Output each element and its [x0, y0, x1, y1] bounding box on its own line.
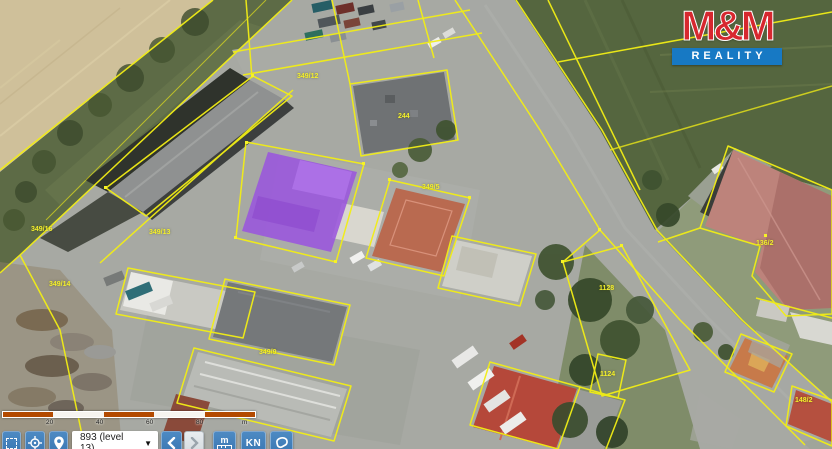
- history-back-button[interactable]: [161, 431, 182, 449]
- parcel-label: 1124: [600, 371, 615, 378]
- dashed-square-icon: [6, 438, 17, 449]
- zoom-level-value: 893 (level 13): [80, 432, 140, 449]
- ruler-icon: [217, 445, 232, 449]
- history-forward-button[interactable]: [184, 431, 204, 449]
- measure-label: m: [220, 436, 228, 444]
- caret-down-icon: ▼: [144, 439, 152, 448]
- cadastre-button[interactable]: KN: [241, 431, 266, 449]
- chevron-left-icon: [167, 437, 176, 449]
- parcel-label: 349/13: [149, 229, 170, 236]
- parcel-label: 148/2: [795, 397, 813, 404]
- map-pin-icon: [53, 436, 65, 449]
- parcel-label: 244: [398, 113, 410, 120]
- lasso-icon: [274, 436, 289, 449]
- crosshair-icon: [28, 436, 42, 449]
- parcel-label: 349/12: [297, 73, 318, 80]
- parcel-label: 136/2: [756, 240, 774, 247]
- scale-bar-track: [2, 411, 256, 418]
- map-toolbar: 893 (level 13) ▼ m KN: [2, 431, 293, 449]
- zoom-level-select[interactable]: 893 (level 13) ▼: [72, 431, 158, 449]
- parcel-label: 1128: [599, 285, 614, 292]
- scale-tick: 20: [46, 419, 53, 426]
- parcel-label: 349/5: [422, 184, 440, 191]
- chevron-right-icon: [190, 437, 199, 449]
- select-extent-button[interactable]: [2, 431, 21, 449]
- map-viewport: 349/12244349/5349/16349/13349/14349/9112…: [0, 0, 832, 449]
- aerial-map[interactable]: [0, 0, 832, 449]
- scale-bar: 20 40 60 80 m: [2, 411, 258, 431]
- parcel-label: 349/9: [259, 349, 277, 356]
- scale-unit: m: [242, 419, 247, 426]
- measure-button[interactable]: m: [213, 431, 236, 449]
- draw-area-button[interactable]: [270, 431, 293, 449]
- scale-bar-labels: 20 40 60 80 m: [2, 418, 258, 427]
- parcel-label: 349/14: [49, 281, 70, 288]
- parcel-label: 349/16: [31, 226, 52, 233]
- scale-tick: 40: [96, 419, 103, 426]
- locate-button[interactable]: [25, 431, 45, 449]
- cadastre-label: KN: [246, 438, 261, 449]
- add-marker-button[interactable]: [49, 431, 68, 449]
- scale-tick: 60: [146, 419, 153, 426]
- scale-tick: 80: [196, 419, 203, 426]
